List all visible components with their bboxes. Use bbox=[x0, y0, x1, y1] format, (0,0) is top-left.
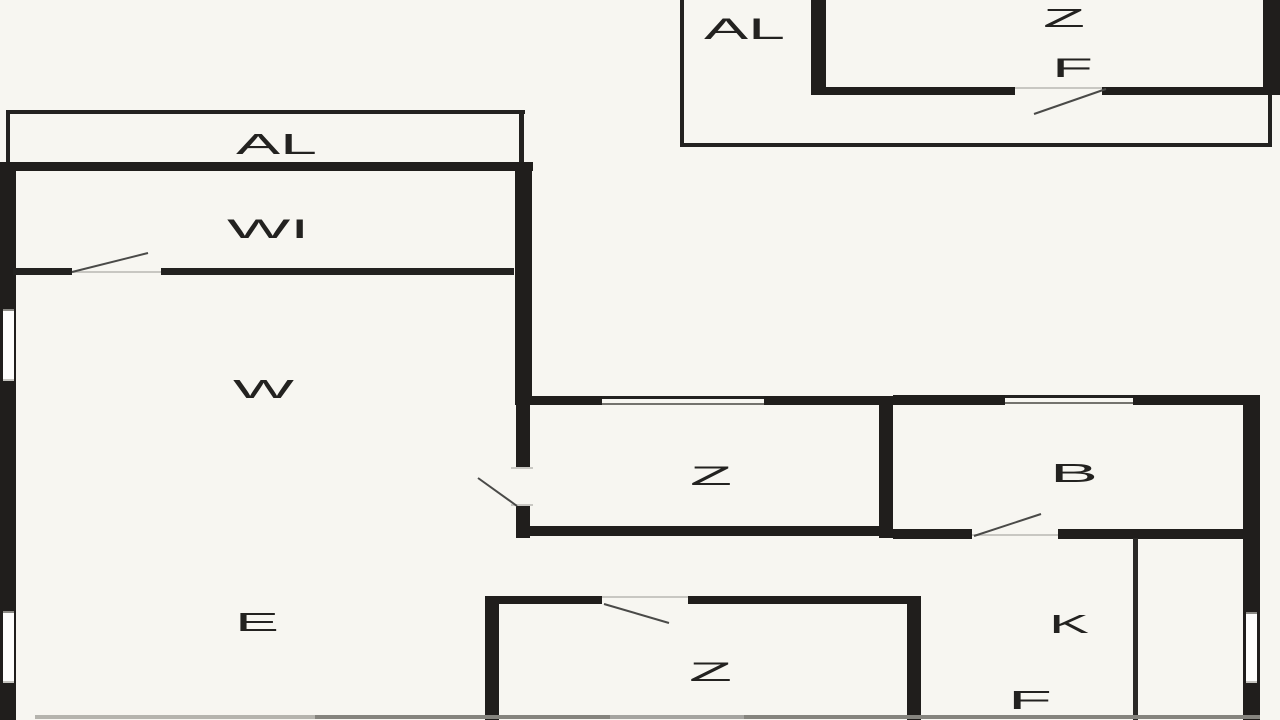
svg-text:AL: AL bbox=[236, 129, 317, 161]
svg-text:Z: Z bbox=[690, 461, 732, 491]
svg-text:Z: Z bbox=[689, 657, 732, 687]
svg-text:F: F bbox=[1008, 685, 1052, 715]
svg-text:AL: AL bbox=[704, 13, 785, 46]
svg-text:F: F bbox=[1052, 53, 1093, 83]
svg-text:WI: WI bbox=[227, 214, 309, 244]
svg-text:W: W bbox=[233, 374, 295, 404]
svg-text:K: K bbox=[1049, 609, 1091, 639]
svg-text:B: B bbox=[1050, 458, 1098, 488]
svg-text:E: E bbox=[235, 607, 279, 637]
svg-text:Z: Z bbox=[1043, 3, 1085, 33]
